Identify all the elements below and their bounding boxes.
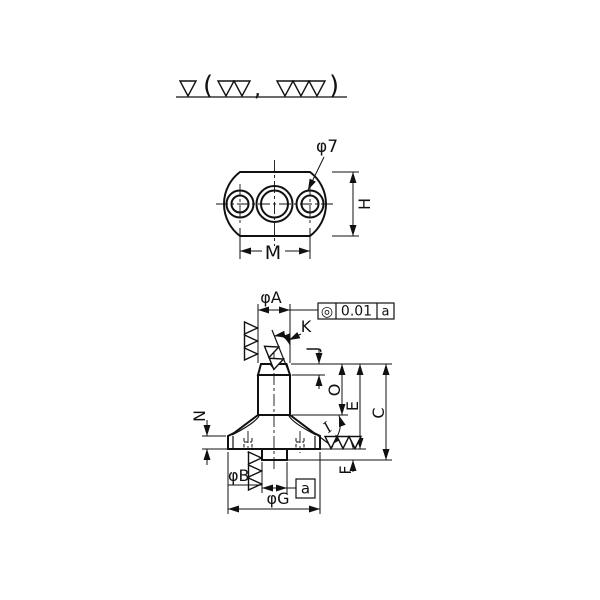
leader-line bbox=[289, 334, 301, 340]
roughness-triangle-icon bbox=[249, 452, 262, 464]
label-datum-a: a bbox=[301, 480, 310, 498]
fcf-tolerance-value: 0.01 bbox=[341, 304, 372, 320]
drawing-canvas: ( , ) φ7 H M bbox=[0, 0, 600, 600]
label-phiG: φG bbox=[267, 489, 290, 508]
note-comma: , bbox=[254, 77, 261, 102]
roughness-triangle-icon bbox=[249, 465, 262, 477]
label-K: K bbox=[301, 317, 312, 336]
roughness-triangle-icon bbox=[293, 81, 309, 96]
roughness-triangle-icon bbox=[277, 81, 293, 96]
roughness-triangle-icon bbox=[245, 335, 258, 347]
label-M: M bbox=[265, 242, 281, 264]
bottom-boss bbox=[262, 449, 287, 460]
roughness-triangle-icon bbox=[245, 322, 258, 334]
fcf-datum-ref: a bbox=[382, 305, 390, 320]
label-O: O bbox=[325, 384, 344, 397]
label-H: H bbox=[355, 198, 374, 210]
concentricity-icon: ◎ bbox=[321, 304, 333, 320]
label-hole-dia: φ7 bbox=[316, 137, 338, 157]
datum-symbol: a bbox=[296, 479, 315, 498]
roughness-triangle-icon bbox=[180, 81, 196, 96]
top-view: φ7 H M bbox=[216, 137, 374, 264]
label-F: F bbox=[336, 465, 355, 474]
front-view: φA ◎ 0.01 a K J O E bbox=[190, 288, 394, 514]
roughness-triangle-icon bbox=[234, 81, 250, 96]
surface-finish-note: ( , ) bbox=[176, 71, 347, 102]
roughness-triangle-icon bbox=[337, 437, 349, 449]
roughness-triangle-icon bbox=[264, 341, 281, 357]
roughness-triangle-icon bbox=[218, 81, 234, 96]
tolerance-frame: ◎ 0.01 a bbox=[318, 303, 394, 320]
roughness-stack bbox=[245, 322, 258, 360]
label-phiB: φB bbox=[228, 466, 250, 485]
part-drawing-svg: ( , ) φ7 H M bbox=[0, 0, 600, 600]
label-J: J bbox=[303, 347, 322, 353]
boss-roughness-stack bbox=[249, 452, 262, 490]
label-C: C bbox=[369, 407, 388, 418]
label-N: N bbox=[190, 410, 209, 422]
roughness-triangle-icon bbox=[245, 348, 258, 360]
roughness-triangle-icon bbox=[349, 437, 361, 449]
roughness-triangle-icon bbox=[249, 478, 262, 490]
label-E: E bbox=[343, 401, 362, 411]
label-phiA: φA bbox=[260, 288, 282, 307]
roughness-triangle-icon bbox=[309, 81, 325, 96]
label-I: I bbox=[319, 418, 337, 437]
